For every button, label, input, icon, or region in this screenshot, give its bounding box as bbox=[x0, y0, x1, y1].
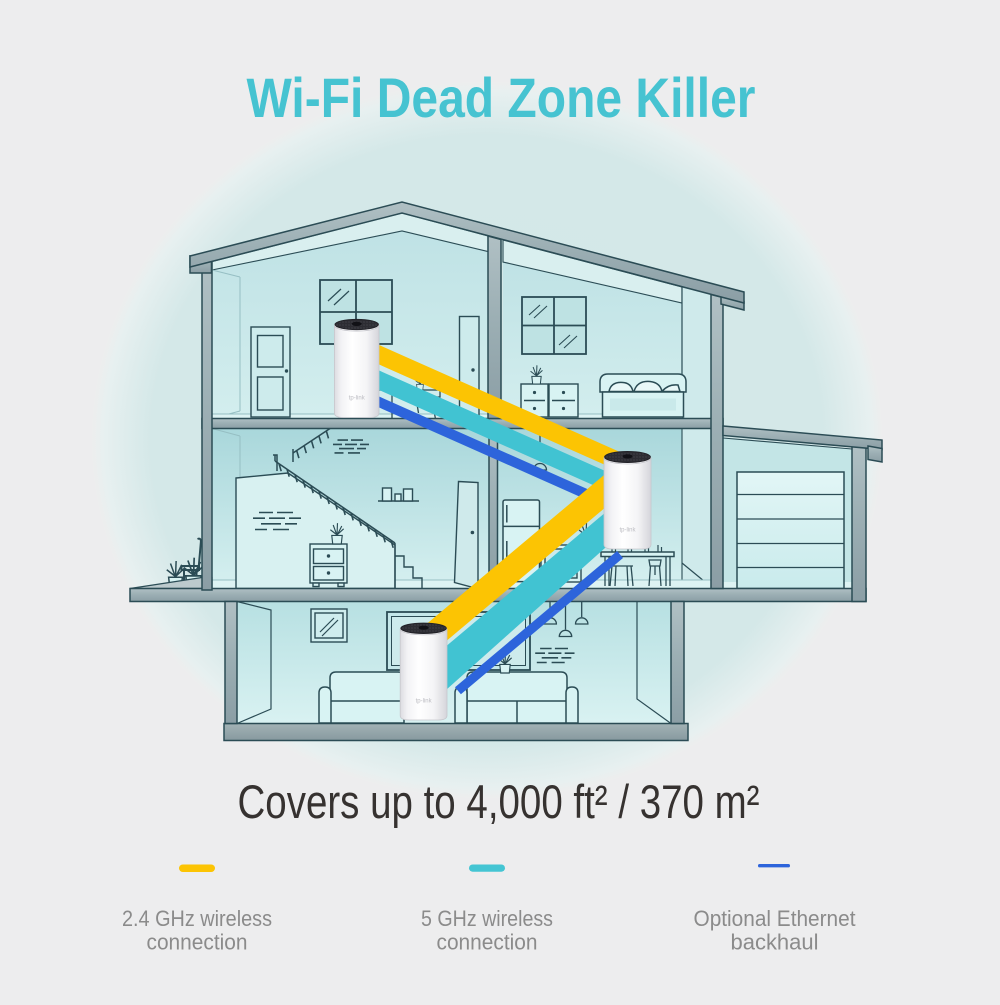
svg-text:tp-link: tp-link bbox=[349, 396, 366, 402]
svg-text:tp-link: tp-link bbox=[416, 698, 433, 704]
svg-text:5 GHz wireless: 5 GHz wireless bbox=[421, 906, 553, 931]
svg-text:backhaul: backhaul bbox=[731, 930, 819, 955]
svg-text:connection: connection bbox=[437, 930, 538, 955]
svg-text:2.4 GHz wireless: 2.4 GHz wireless bbox=[122, 906, 272, 931]
svg-text:connection: connection bbox=[147, 930, 248, 955]
svg-text:tp-link: tp-link bbox=[619, 527, 636, 533]
svg-text:Covers up to 4,000 ft² / 370 m: Covers up to 4,000 ft² / 370 m² bbox=[238, 775, 760, 828]
svg-text:Optional Ethernet: Optional Ethernet bbox=[694, 906, 856, 931]
svg-text:Wi-Fi Dead Zone Killer: Wi-Fi Dead Zone Killer bbox=[247, 66, 756, 129]
